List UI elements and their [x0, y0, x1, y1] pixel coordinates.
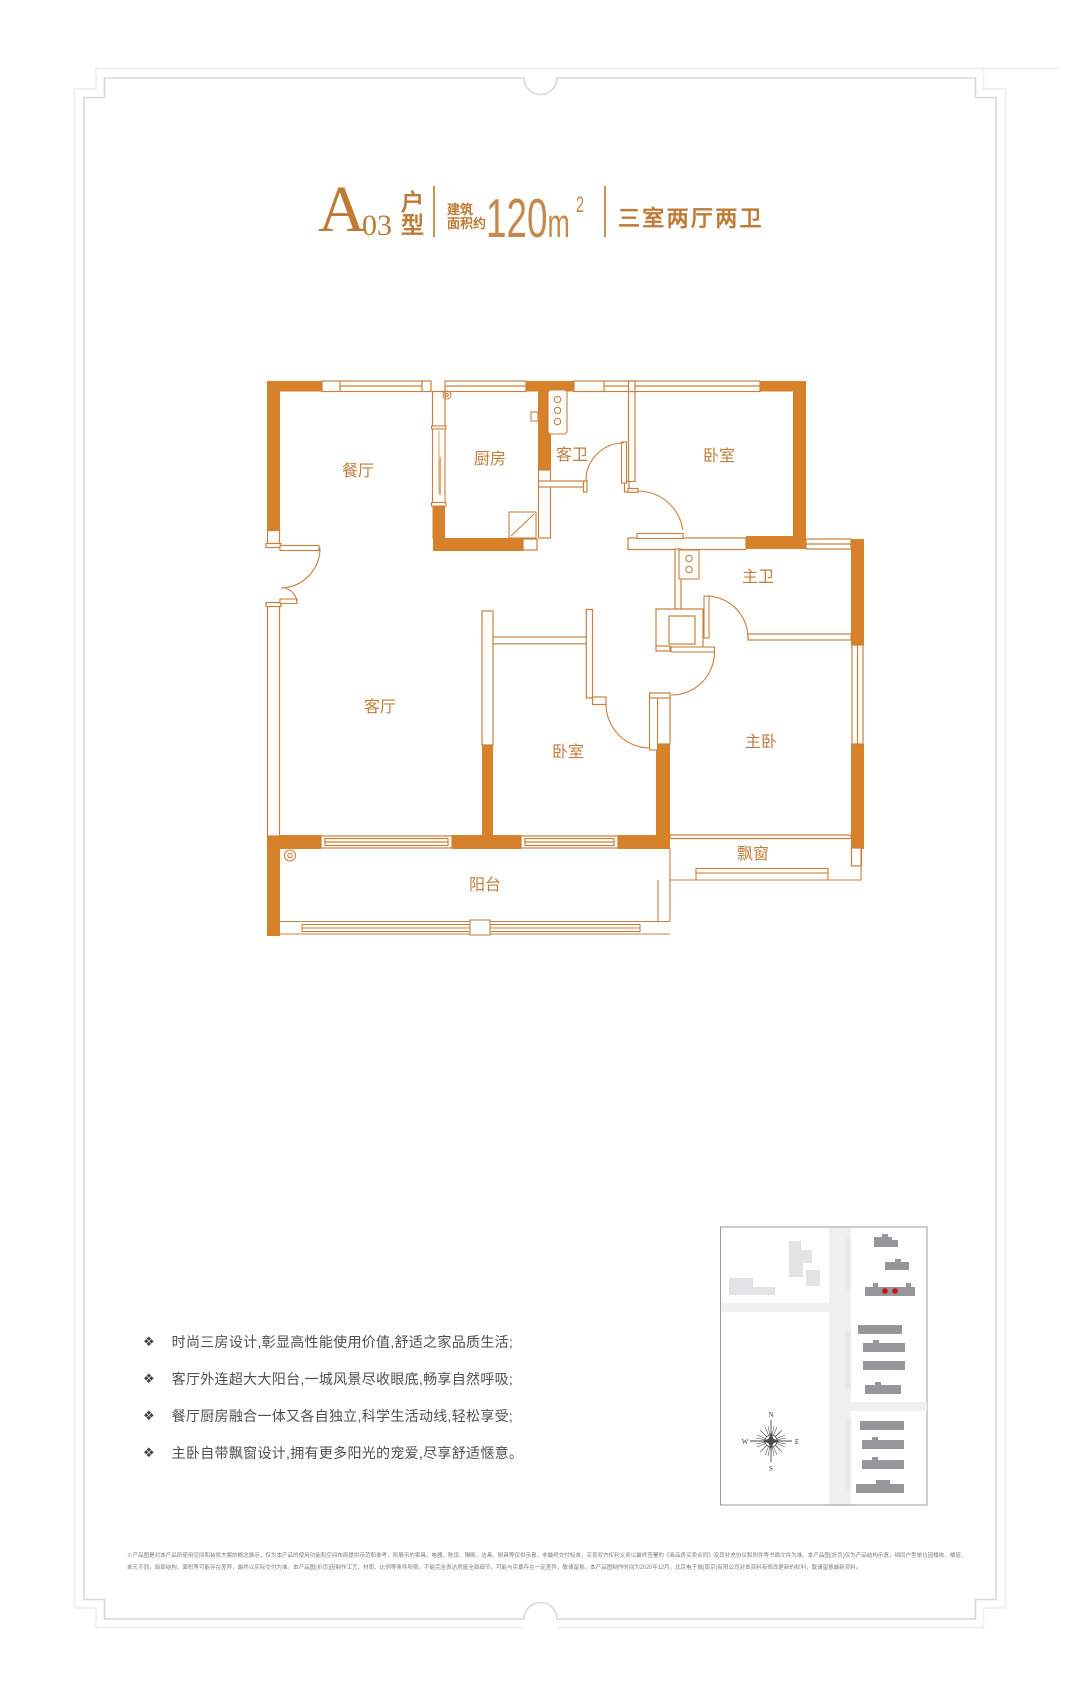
svg-text:N: N: [768, 1411, 773, 1419]
svg-text:S: S: [769, 1465, 773, 1473]
svg-text:E: E: [795, 1438, 799, 1446]
svg-text:W: W: [742, 1438, 749, 1446]
